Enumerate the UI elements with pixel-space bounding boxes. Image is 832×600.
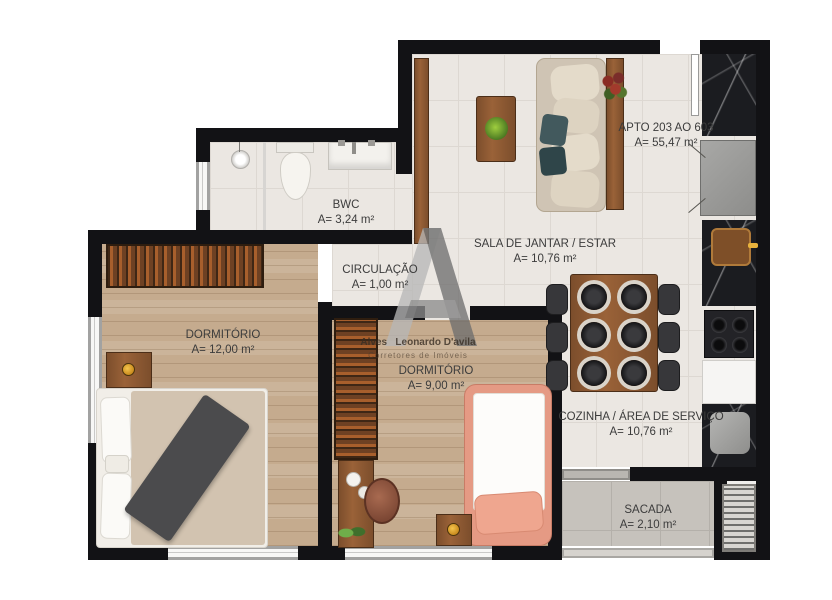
- stove-burner: [711, 317, 727, 333]
- room-label-circulacao: CIRCULAÇÃO A= 1,00 m²: [342, 263, 417, 293]
- entry-door-leaf: [691, 54, 699, 116]
- wall-bed1-right: [318, 302, 332, 560]
- room-label-sala: SALA DE JANTAR / ESTAR A= 10,76 m²: [474, 237, 616, 267]
- dining-chair: [658, 360, 680, 391]
- place-setting: [581, 284, 607, 310]
- realtor-name-2: Leonardo D'avila: [395, 337, 475, 348]
- bedroom1-wardrobe: [106, 244, 264, 288]
- room-name: BWC: [333, 199, 360, 211]
- vanity-handle-right: [368, 140, 375, 146]
- room-name: CIRCULAÇÃO: [342, 264, 417, 276]
- desk-cup: [346, 472, 361, 487]
- room-area: A= 12,00 m²: [192, 344, 255, 356]
- fridge: [700, 140, 756, 216]
- wall-balcony-top: [630, 467, 770, 481]
- place-setting: [621, 284, 647, 310]
- wall-bwc-top: [196, 128, 412, 142]
- realtor-subtitle: Corretores de Imóveis: [368, 351, 468, 360]
- room-name: SACADA: [624, 504, 671, 516]
- stove: [704, 310, 754, 358]
- bedroom2-plant: [334, 520, 368, 546]
- vanity-handle-left: [338, 140, 345, 146]
- nightstand-lamp: [447, 523, 460, 536]
- floor-plan-image: APTO 203 AO 603 A= 55,47 m² BWC A= 3,24 …: [0, 0, 832, 600]
- tv-panel: [414, 58, 429, 244]
- bwc-window: [196, 162, 210, 210]
- wall-bottom-c: [492, 546, 562, 560]
- bed-small-pillow: [105, 455, 129, 473]
- room-area: A= 2,10 m²: [620, 519, 677, 531]
- kitchen-faucet-icon: [748, 243, 758, 248]
- sofa: [536, 58, 606, 212]
- bedroom1-bottom-window: [168, 546, 298, 560]
- room-name: DORMITÓRIO: [399, 365, 474, 377]
- room-label-bwc: BWC A= 3,24 m²: [318, 198, 375, 228]
- teal-pillow: [539, 113, 569, 146]
- wall-bottom-b: [298, 546, 345, 560]
- room-label-dormitorio-2: DORMITÓRIO A= 9,00 m²: [399, 364, 474, 394]
- balcony-railing: [562, 548, 714, 558]
- bedroom2-bottom-window: [345, 546, 492, 560]
- sofa-cushion: [550, 63, 601, 103]
- room-label-dormitorio-1: DORMITÓRIO A= 12,00 m²: [186, 328, 261, 358]
- room-area: A= 3,24 m²: [318, 214, 375, 226]
- place-setting: [581, 322, 607, 348]
- wall-bwc-right: [396, 128, 412, 174]
- laundry-counter: [702, 360, 756, 404]
- room-area: A= 10,76 m²: [514, 253, 577, 265]
- flower-plant: [599, 70, 629, 102]
- room-area: A= 9,00 m²: [408, 380, 465, 392]
- realtor-subtitle-watermark: Corretores de Imóveis: [368, 351, 468, 360]
- wall-living-left: [398, 40, 412, 136]
- place-setting: [621, 322, 647, 348]
- dining-chair: [546, 322, 568, 353]
- coffee-table-plant: [485, 117, 508, 140]
- wall-top-left: [398, 40, 660, 54]
- sofa-cushion: [550, 169, 600, 208]
- nightstand-lamp: [122, 363, 135, 376]
- wall-bwc-left-a: [196, 128, 210, 162]
- bed-pillow: [100, 396, 132, 463]
- shower-arm: [239, 142, 240, 152]
- apto-area: A= 55,47 m²: [635, 137, 698, 149]
- bathroom-vanity: [328, 142, 392, 170]
- desk-chair: [364, 478, 400, 524]
- realtor-names-watermark: Alves Leonardo D'avila: [360, 337, 475, 348]
- stove-burner: [711, 337, 727, 353]
- wall-right: [756, 40, 770, 560]
- room-name: COZINHA / ÁREA DE SERVIÇO: [558, 411, 723, 423]
- stove-burner: [732, 317, 748, 333]
- room-name: SALA DE JANTAR / ESTAR: [474, 238, 616, 250]
- bed-pillow: [474, 491, 545, 536]
- dining-chair: [546, 360, 568, 391]
- dining-chair: [546, 284, 568, 315]
- room-area: A= 1,00 m²: [352, 279, 409, 291]
- apto-label: APTO 203 AO 603 A= 55,47 m²: [618, 121, 713, 151]
- dining-chair: [658, 284, 680, 315]
- stove-burner: [732, 337, 748, 353]
- teal-pillow: [539, 146, 568, 177]
- room-label-sacada: SACADA A= 2,10 m²: [620, 503, 677, 533]
- single-bed: [464, 384, 552, 546]
- dining-chair: [658, 322, 680, 353]
- shower-head-icon: [231, 150, 250, 169]
- kitchen-sink: [711, 228, 751, 266]
- ac-grille: [722, 484, 756, 552]
- balcony-glass-door: [562, 469, 630, 480]
- apto-number: APTO 203 AO 603: [618, 122, 713, 134]
- room-area: A= 10,76 m²: [610, 426, 673, 438]
- double-bed: [96, 388, 268, 548]
- room-name: DORMITÓRIO: [186, 329, 261, 341]
- wall-bottom-a: [88, 546, 168, 560]
- vanity-faucet-icon: [352, 142, 356, 154]
- wall-bed1-left-a: [88, 230, 102, 317]
- wall-band-bwc-bottom: [88, 230, 412, 244]
- place-setting: [621, 360, 647, 386]
- place-setting: [581, 360, 607, 386]
- realtor-name-1: Alves: [360, 337, 387, 348]
- room-label-cozinha: COZINHA / ÁREA DE SERVIÇO A= 10,76 m²: [558, 410, 723, 440]
- shower-glass: [263, 142, 266, 230]
